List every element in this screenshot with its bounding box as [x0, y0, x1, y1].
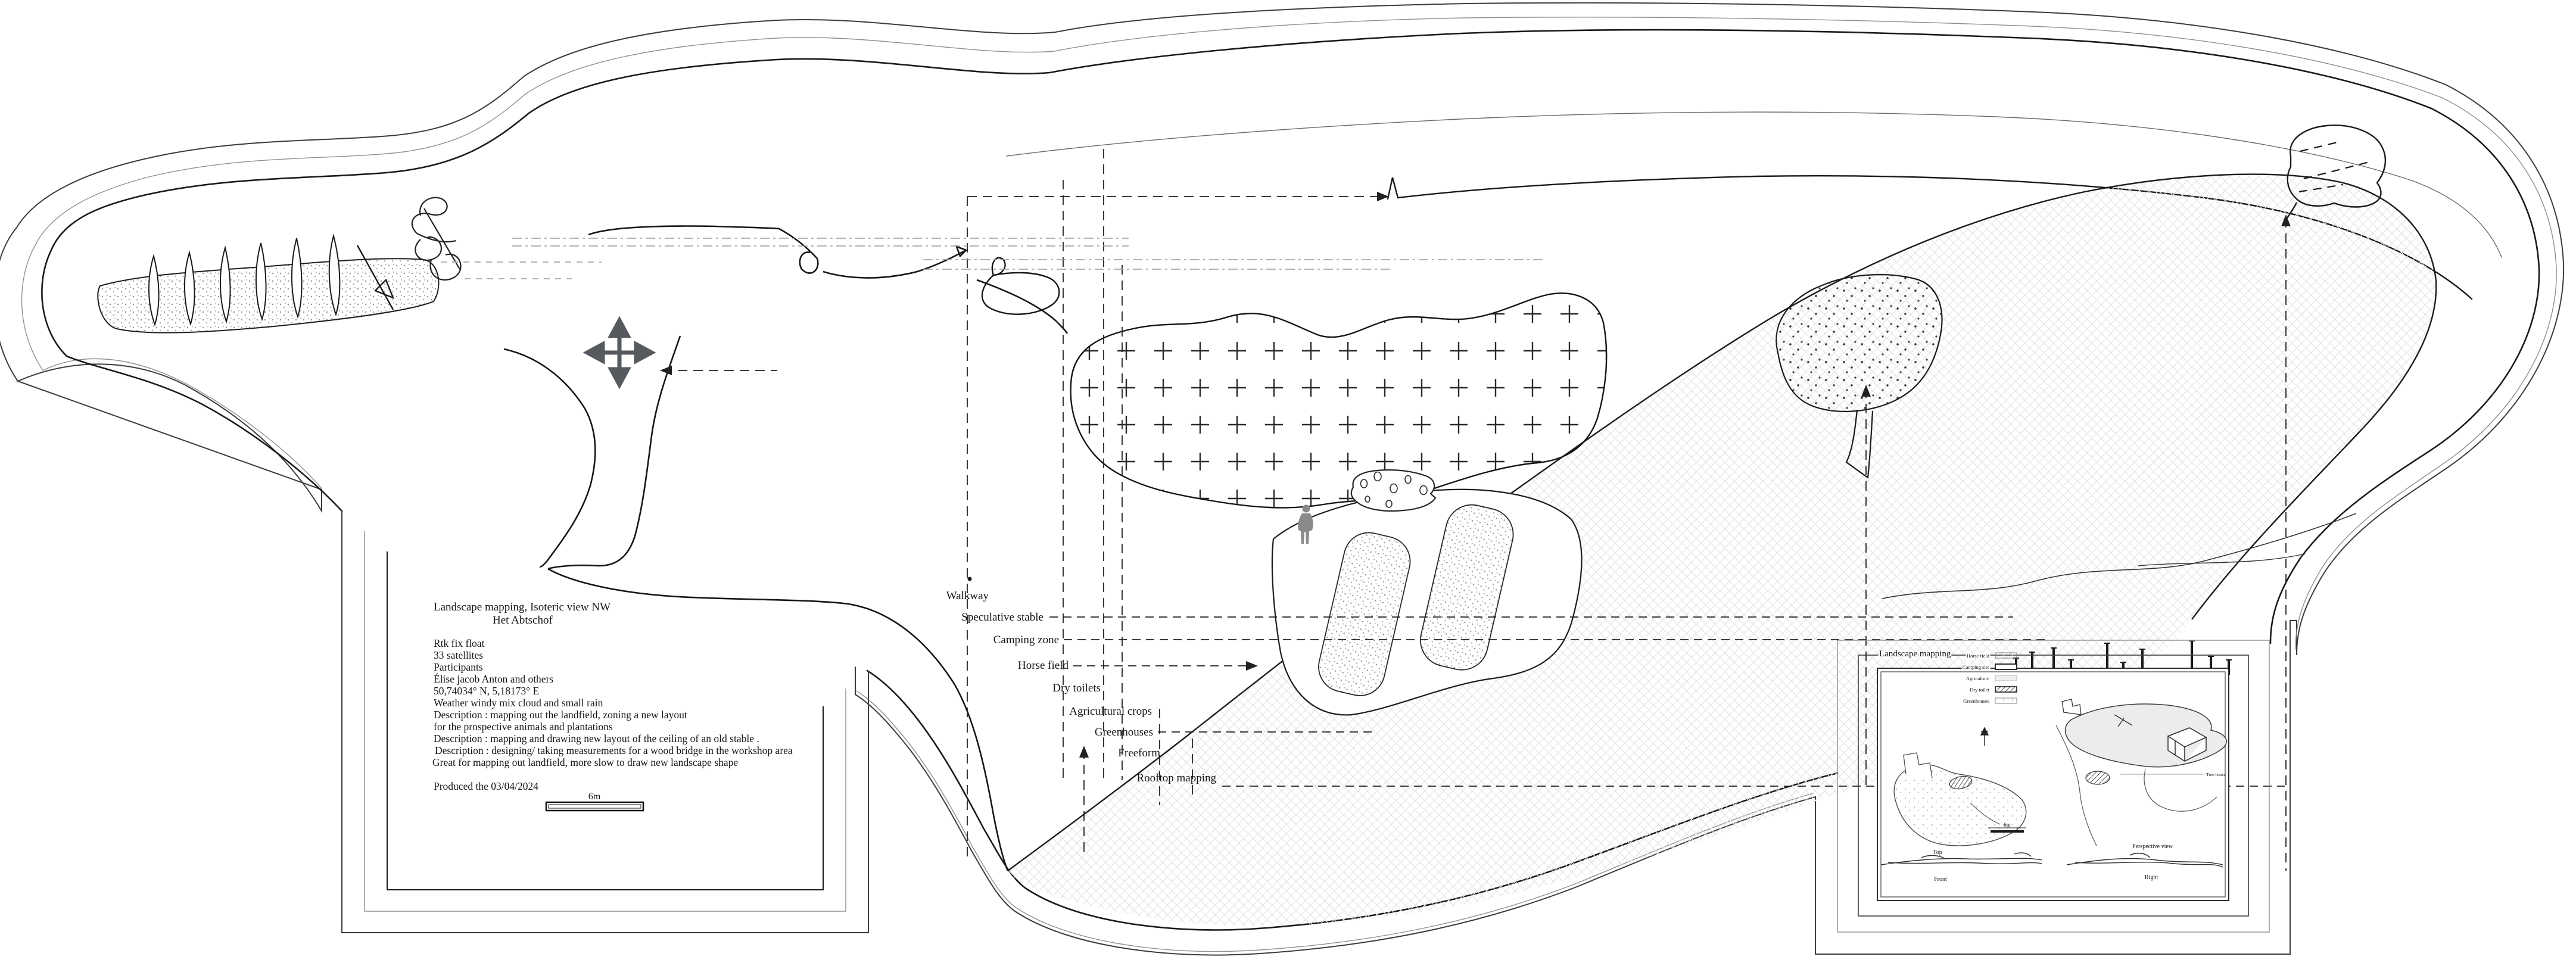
- zone-label-agricultural-crops: Agricultural crops: [1069, 705, 1152, 718]
- zone-label-walkway: Walkway: [946, 590, 989, 602]
- detail-line: 50,74034° N, 5,18173° E: [434, 685, 539, 697]
- freeform-field-lines: [504, 226, 1067, 871]
- legend-label: Greenhouses: [1963, 698, 1989, 704]
- inset-label-perspective: Perspective view: [2132, 843, 2173, 850]
- inset-label-right: Right: [2145, 874, 2158, 881]
- plan-title: Landscape mapping, Isoteric view NW: [434, 601, 610, 613]
- inset-annotation-tree-house: Tree house: [2206, 772, 2226, 777]
- legend-label: Horse field: [1967, 653, 1990, 659]
- site-plan-canvas: Landscape mapping, Isoteric view NW Het …: [0, 0, 2576, 969]
- zone-label-dry-toilets: Dry toilets: [1052, 682, 1101, 694]
- zone-label-rooftop-mapping: Rooftop mapping: [1136, 772, 1216, 784]
- detail-line: Description : mapping and drawing new la…: [434, 733, 759, 744]
- zone-label-horse-field: Horse field: [1018, 659, 1069, 672]
- spotted-patch: [1351, 470, 1435, 511]
- detail-line: Rtk fix float: [434, 637, 485, 649]
- detail-line: Description : mapping out the landfield,…: [434, 709, 687, 721]
- jetty-guide-dashes: [441, 262, 602, 279]
- inset-scale-label: 6m: [2004, 822, 2011, 828]
- plan-subtitle: Het Abtschof: [493, 614, 553, 627]
- zone-label-greenhouses: Greenhouses: [1095, 726, 1153, 739]
- zone-label-freeform: Freeform: [1118, 747, 1160, 759]
- hatch-title: Landscape mapping: [1879, 649, 1951, 659]
- detail-line: 33 satellites: [434, 649, 483, 661]
- detail-line: Description : designing/ taking measurem…: [435, 744, 793, 756]
- walkway-point: [968, 577, 972, 581]
- detail-line: Élise jacob Anton and others: [434, 673, 553, 685]
- site-plan-drawing: Landscape mapping, Isoteric view NW Het …: [0, 0, 2576, 969]
- detail-line: Weather windy mix cloud and small rain: [434, 697, 603, 709]
- zone-label-camping-zone: Camping zone: [993, 634, 1059, 646]
- detail-line: for the prospective animals and plantati…: [434, 721, 613, 733]
- legend-label: Camping site: [1963, 664, 1989, 670]
- scale-label: 6m: [588, 792, 601, 802]
- produced-date: Produced the 03/04/2024: [434, 780, 538, 792]
- zone-label-speculative-stable: Speculative stable: [961, 611, 1044, 624]
- detail-line: Participants: [434, 661, 483, 673]
- compass-move-icon: [587, 320, 652, 385]
- inset-label-front: Front: [1934, 876, 1947, 883]
- inset-panel: [1837, 640, 2269, 932]
- scale-bar: 6m: [546, 792, 643, 811]
- legend-label: Dry toilet: [1970, 687, 1989, 693]
- jetty-walkway: [98, 198, 602, 333]
- detail-line: Great for mapping out landfield, more sl…: [432, 756, 738, 768]
- legend-label: Agriculture: [1966, 675, 1989, 681]
- title-block: Landscape mapping, Isoteric view NW Het …: [432, 601, 793, 811]
- inset-label-top: Top: [1933, 849, 1942, 856]
